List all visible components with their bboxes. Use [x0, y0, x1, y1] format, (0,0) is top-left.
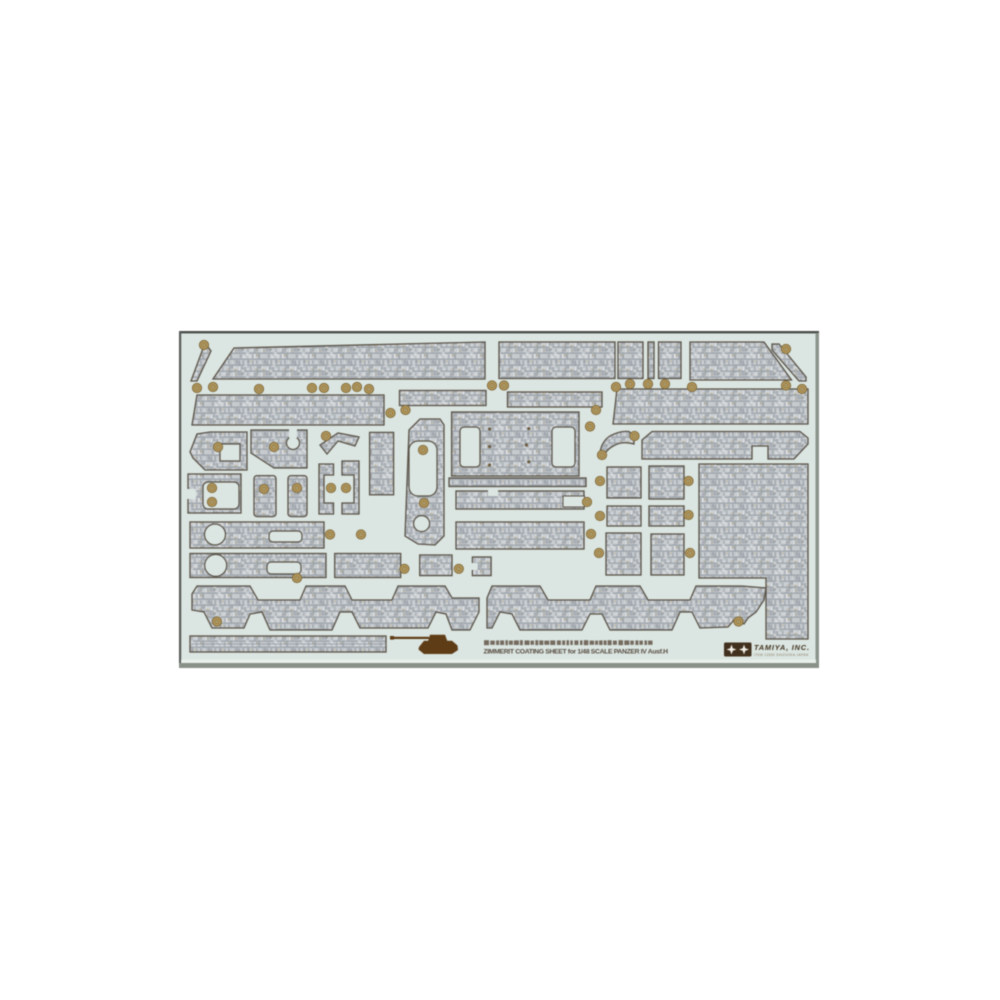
svg-text:ITEM 12650 SHIZUOKA JAPAN: ITEM 12650 SHIZUOKA JAPAN	[754, 653, 809, 657]
svg-text:ZIMMERIT COATING SHEET for 1/4: ZIMMERIT COATING SHEET for 1/48 SCALE PA…	[484, 649, 669, 656]
svg-text:TAMIYA, INC.: TAMIYA, INC.	[754, 643, 809, 652]
